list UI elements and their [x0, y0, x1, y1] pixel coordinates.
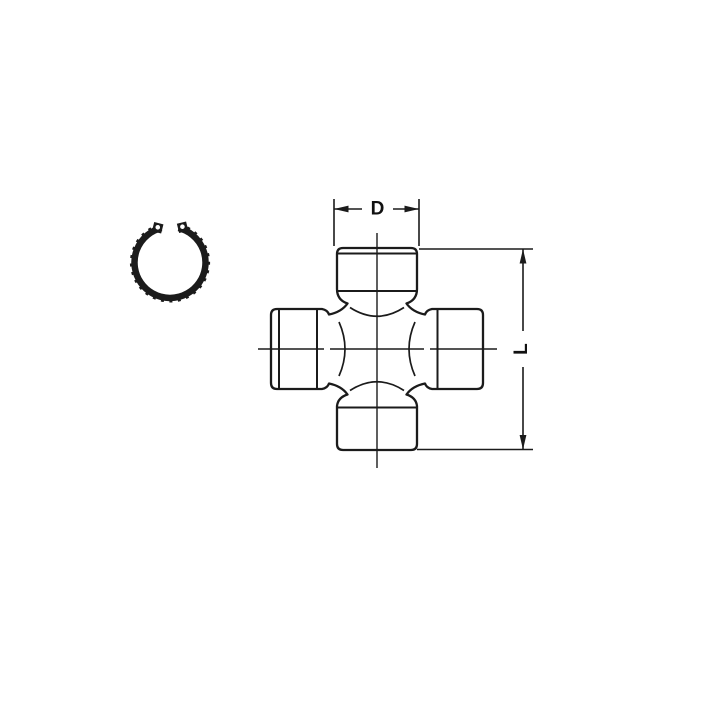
snap-ring-body: [135, 228, 206, 298]
dimension-d-right-arrow: [405, 206, 420, 213]
snap-ring-illustration: [131, 221, 209, 301]
dimension-l-label: L: [511, 343, 532, 355]
dimension-d-left-arrow: [334, 206, 349, 213]
technical-drawing: D L: [0, 0, 720, 720]
dimension-l-bottom-arrow: [520, 435, 527, 450]
dimension-l-top-arrow: [520, 249, 527, 264]
u-joint-cross-illustration: [258, 233, 497, 468]
product-image: D L: [0, 0, 720, 720]
dimension-d-label: D: [371, 199, 385, 220]
